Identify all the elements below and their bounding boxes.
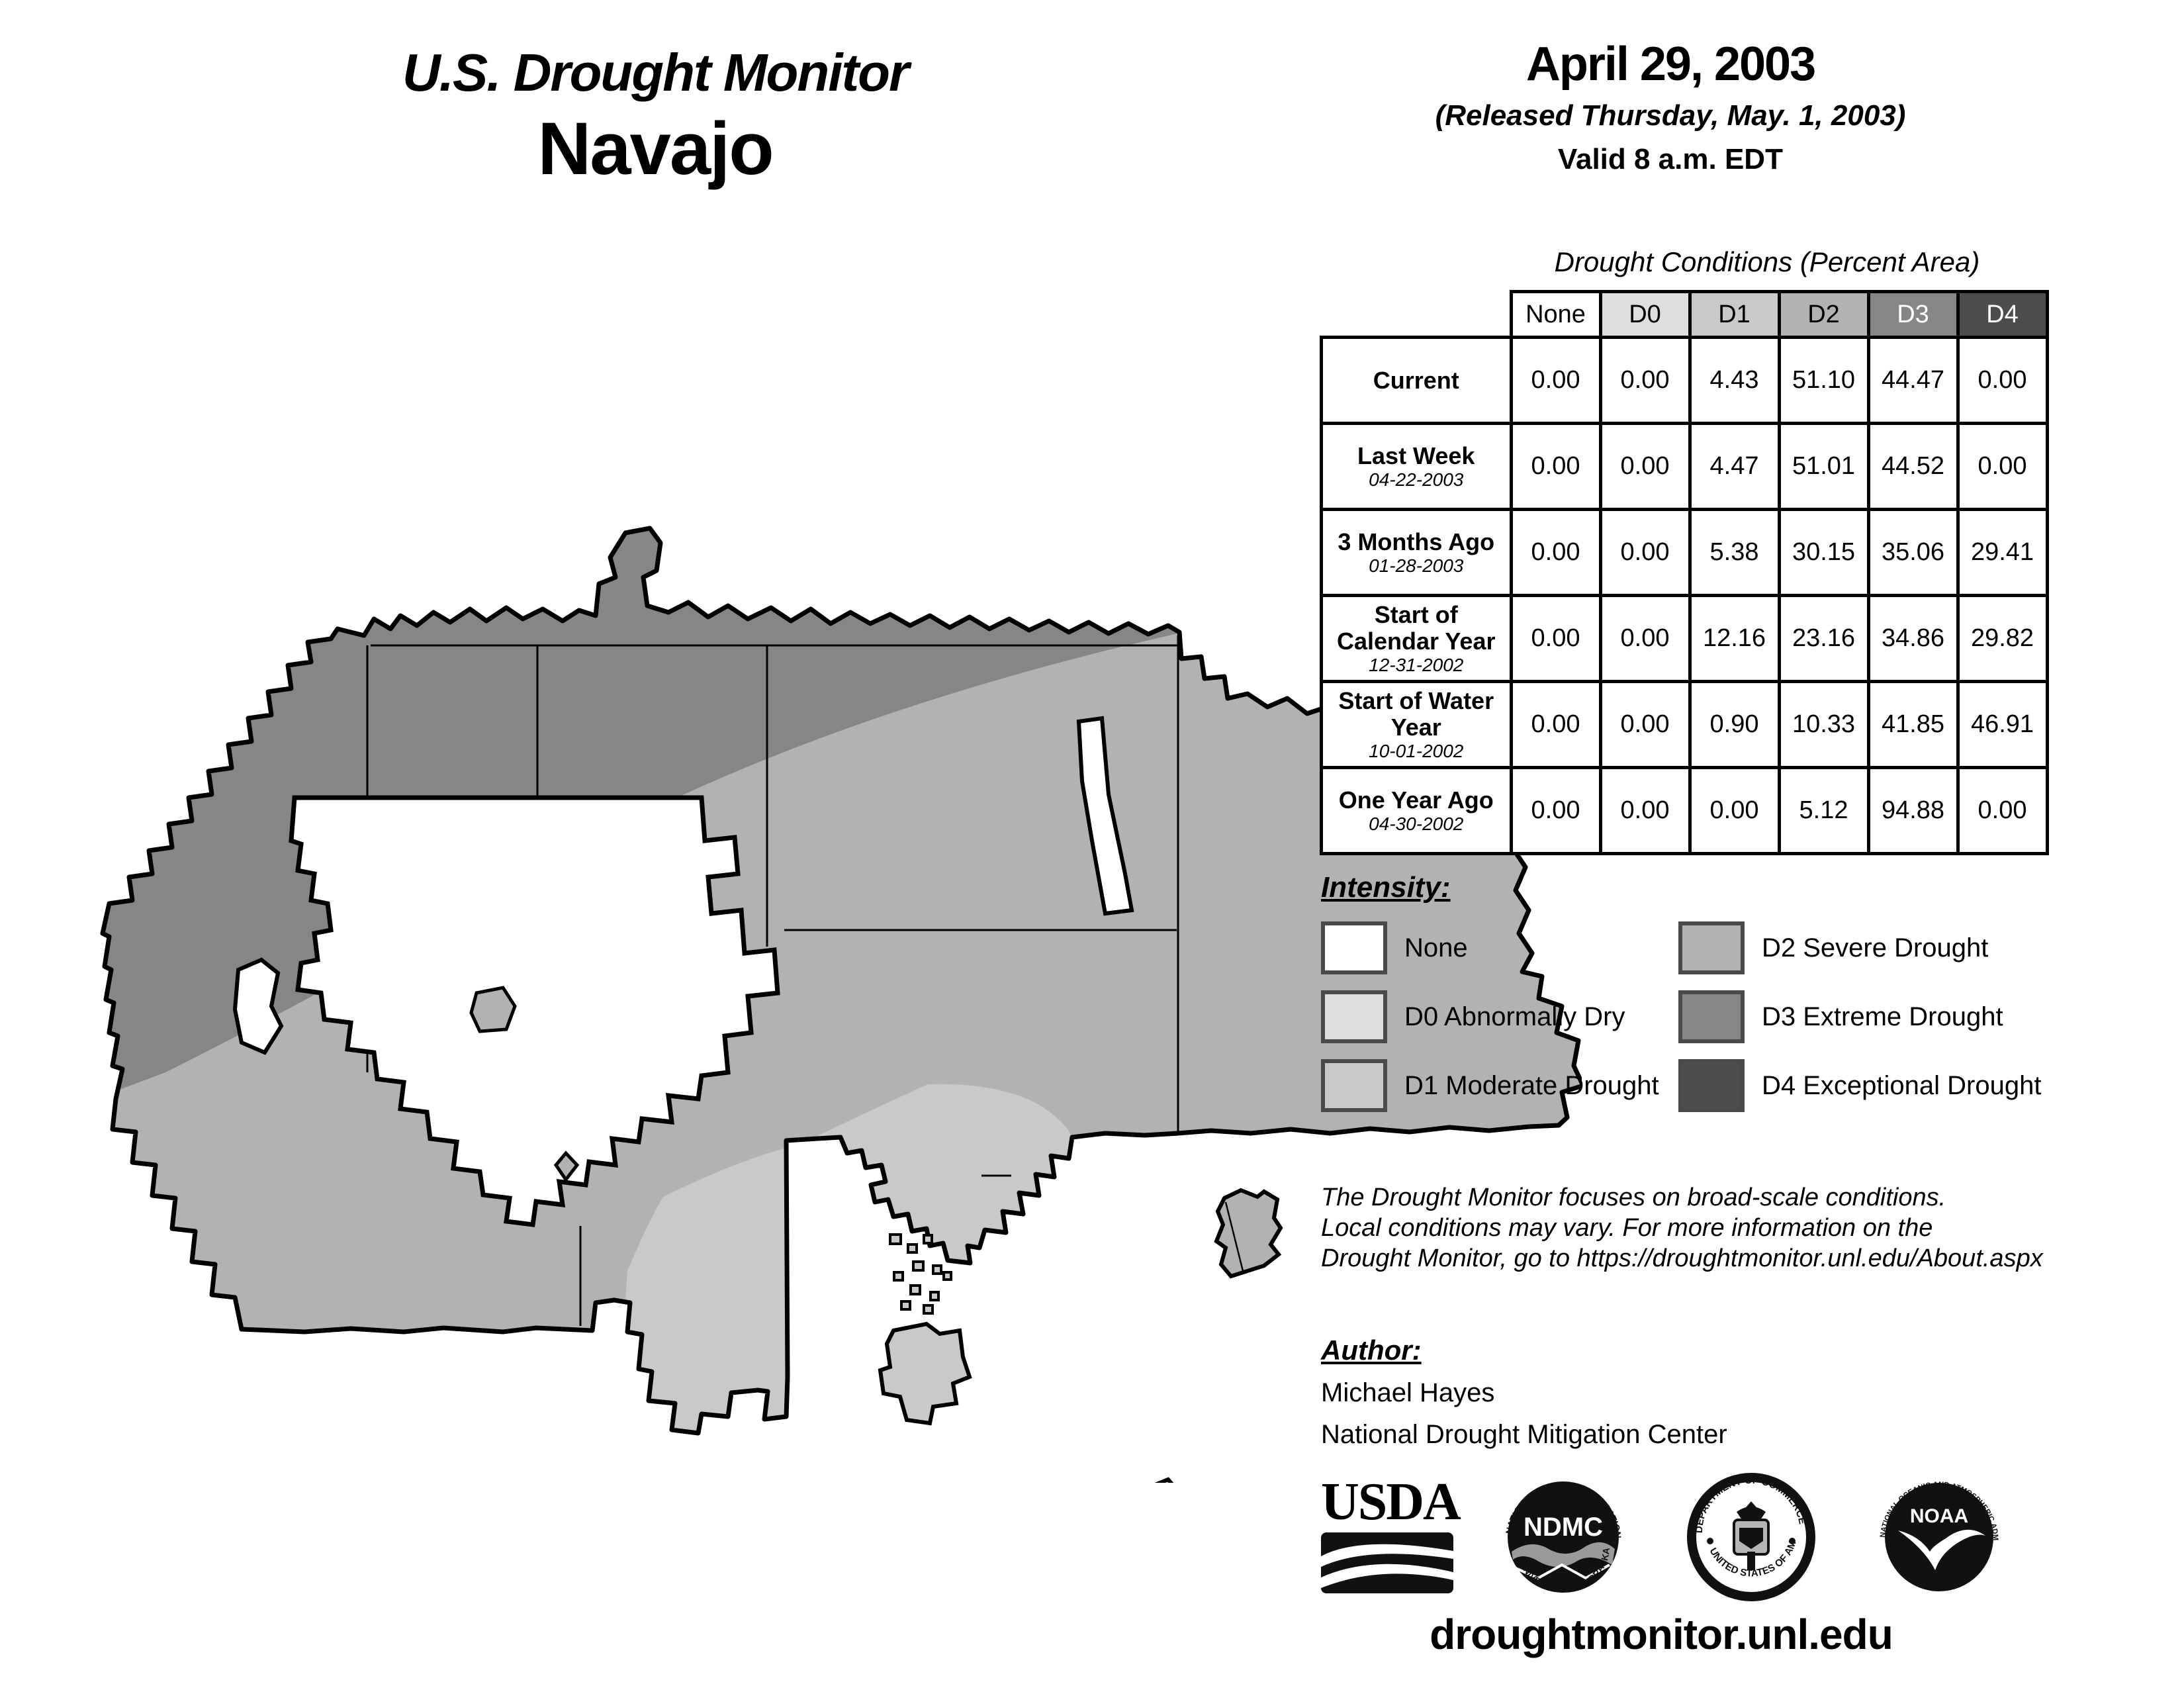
cell-value: 94.88 — [1868, 768, 1958, 854]
legend-title: Intensity: — [1321, 871, 1451, 904]
alamo-satellite — [1216, 1190, 1281, 1276]
col-header-d1: D1 — [1690, 292, 1779, 338]
col-header-d2: D2 — [1779, 292, 1868, 338]
drought-monitor-report: U.S. Drought Monitor Navajo April 29, 20… — [0, 0, 2184, 1688]
svg-text:NOAA: NOAA — [1910, 1505, 1968, 1527]
footer-url: droughtmonitor.unl.edu — [1317, 1610, 2005, 1659]
row-label: 3 Months Ago — [1323, 529, 1510, 555]
table-corner-blank — [1322, 292, 1512, 338]
cell-value: 35.06 — [1868, 510, 1958, 596]
enclave-island-1 — [471, 988, 515, 1031]
cell-value: 30.15 — [1779, 510, 1868, 596]
table-row: Start of Calendar Year12-31-2002 0.00 0.… — [1322, 596, 2048, 682]
legend-item-none: None — [1321, 921, 1468, 974]
cell-value: 51.01 — [1779, 424, 1868, 510]
cell-value: 12.16 — [1690, 596, 1779, 682]
release-date: (Released Thursday, May. 1, 2003) — [1366, 99, 1975, 132]
ndmc-logo: NATIONAL DROUGHT MITIGATION CENTER NDMC … — [1498, 1472, 1628, 1602]
legend-item-d1: D1 Moderate Drought — [1321, 1059, 1659, 1112]
row-label: Start of Water Year — [1323, 688, 1510, 741]
legend-swatch-d4 — [1678, 1059, 1745, 1112]
table-title: Drought Conditions (Percent Area) — [1508, 246, 2026, 278]
date-block: April 29, 2003 (Released Thursday, May. … — [1366, 37, 1975, 176]
cell-value: 0.00 — [1511, 424, 1600, 510]
usda-swoosh — [1321, 1532, 1453, 1593]
col-header-d3: D3 — [1868, 292, 1958, 338]
cell-value: 0.00 — [1511, 596, 1600, 682]
cell-value: 4.43 — [1690, 338, 1779, 424]
cell-value: 5.38 — [1690, 510, 1779, 596]
legend-item-d0: D0 Abnormally Dry — [1321, 990, 1625, 1043]
legend-item-d2: D2 Severe Drought — [1678, 921, 1988, 974]
author-title: Author: — [1321, 1335, 1727, 1366]
cell-value: 0.00 — [1600, 424, 1690, 510]
cell-value: 46.91 — [1958, 682, 2047, 768]
cell-value: 29.41 — [1958, 510, 2047, 596]
cell-value: 44.52 — [1868, 424, 1958, 510]
legend-swatch-d1 — [1321, 1059, 1387, 1112]
cell-value: 0.90 — [1690, 682, 1779, 768]
cell-value: 5.12 — [1779, 768, 1868, 854]
cell-value: 0.00 — [1600, 510, 1690, 596]
row-date: 04-30-2002 — [1323, 814, 1510, 835]
legend-item-d3: D3 Extreme Drought — [1678, 990, 2003, 1043]
cell-value: 0.00 — [1600, 596, 1690, 682]
author-block: Author: Michael Hayes National Drought M… — [1321, 1335, 1727, 1450]
usda-logo: USDA — [1321, 1472, 1453, 1599]
drought-conditions-table: None D0 D1 D2 D3 D4 Current 0.00 0.00 4.… — [1320, 290, 2049, 855]
cell-value: 29.82 — [1958, 596, 2047, 682]
cell-value: 0.00 — [1600, 338, 1690, 424]
row-date: 12-31-2002 — [1323, 655, 1510, 676]
cell-value: 51.10 — [1779, 338, 1868, 424]
cell-value: 0.00 — [1958, 768, 2047, 854]
svg-text:NDMC: NDMC — [1524, 1513, 1603, 1542]
region-title: Navajo — [324, 106, 986, 191]
department-of-commerce-logo: DEPARTMENT OF COMMERCE UNITED STATES OF … — [1686, 1472, 1816, 1602]
cell-value: 41.85 — [1868, 682, 1958, 768]
row-label: Current — [1323, 367, 1510, 394]
cell-value: 23.16 — [1779, 596, 1868, 682]
table-row: 3 Months Ago01-28-2003 0.00 0.00 5.38 30… — [1322, 510, 2048, 596]
row-label: One Year Ago — [1323, 787, 1510, 814]
row-date: 01-28-2003 — [1323, 555, 1510, 577]
table-row: Current 0.00 0.00 4.43 51.10 44.47 0.00 — [1322, 338, 2048, 424]
author-name: Michael Hayes — [1321, 1378, 1727, 1408]
cell-value: 0.00 — [1690, 768, 1779, 854]
row-label: Last Week — [1323, 443, 1510, 469]
legend-swatch-d3 — [1678, 990, 1745, 1043]
valid-time: Valid 8 a.m. EDT — [1366, 143, 1975, 176]
cell-value: 0.00 — [1958, 424, 2047, 510]
cell-value: 0.00 — [1958, 338, 2047, 424]
row-label: Start of Calendar Year — [1323, 602, 1510, 655]
row-date: 10-01-2002 — [1323, 741, 1510, 762]
table-row: Last Week04-22-2003 0.00 0.00 4.47 51.01… — [1322, 424, 2048, 510]
row-date: 04-22-2003 — [1323, 469, 1510, 491]
legend-swatch-d2 — [1678, 921, 1745, 974]
col-header-d4: D4 — [1958, 292, 2047, 338]
legend-item-d4: D4 Exceptional Drought — [1678, 1059, 2041, 1112]
legend-swatch-d0 — [1321, 990, 1387, 1043]
cell-value: 44.47 — [1868, 338, 1958, 424]
author-org: National Drought Mitigation Center — [1321, 1420, 1727, 1450]
cell-value: 0.00 — [1511, 338, 1600, 424]
cell-value: 0.00 — [1511, 682, 1600, 768]
report-title: U.S. Drought Monitor — [324, 42, 986, 103]
col-header-d0: D0 — [1600, 292, 1690, 338]
cell-value: 0.00 — [1511, 768, 1600, 854]
legend-swatch-none — [1321, 921, 1387, 974]
cell-value: 0.00 — [1600, 682, 1690, 768]
disclaimer: The Drought Monitor focuses on broad-sca… — [1321, 1182, 2043, 1274]
title-block: U.S. Drought Monitor Navajo — [324, 42, 986, 191]
table-row: Start of Water Year10-01-2002 0.00 0.00 … — [1322, 682, 2048, 768]
cell-value: 0.00 — [1511, 510, 1600, 596]
cell-value: 34.86 — [1868, 596, 1958, 682]
cell-value: 4.47 — [1690, 424, 1779, 510]
map-date: April 29, 2003 — [1366, 37, 1975, 91]
noaa-logo: NATIONAL OCEANIC AND ATMOSPHERIC ADMINIS… — [1874, 1472, 2004, 1602]
tohajiilee-satellite — [1140, 1479, 1183, 1483]
cell-value: 0.00 — [1600, 768, 1690, 854]
cell-value: 10.33 — [1779, 682, 1868, 768]
table-row: One Year Ago04-30-2002 0.00 0.00 0.00 5.… — [1322, 768, 2048, 854]
col-header-none: None — [1511, 292, 1600, 338]
